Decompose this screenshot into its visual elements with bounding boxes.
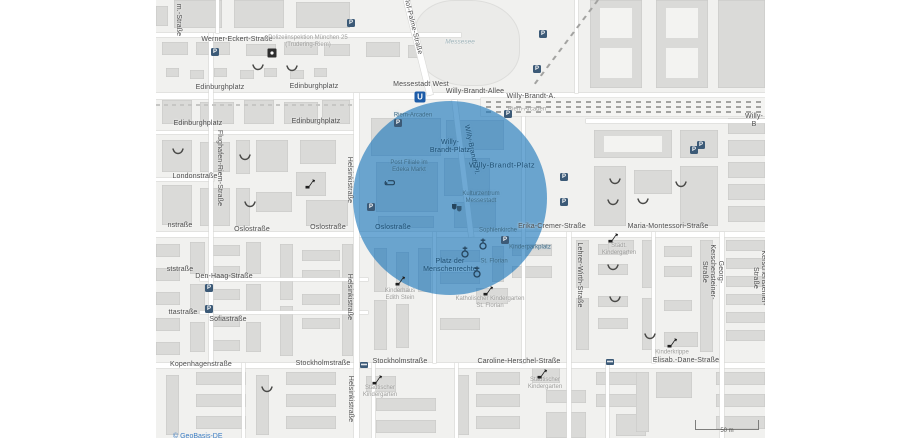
map-attribution: © GeoBasis-DE — [173, 433, 223, 438]
building — [700, 240, 713, 352]
ubahn-icon: U — [415, 92, 426, 103]
kindergarten-slide-icon — [537, 369, 548, 380]
building — [234, 0, 284, 28]
parking-icon: P — [560, 198, 568, 206]
building — [156, 268, 180, 281]
building — [302, 318, 340, 329]
parking-icon: P — [539, 30, 547, 38]
building — [166, 375, 179, 435]
playground-icon — [244, 201, 257, 210]
police-icon — [268, 49, 277, 58]
building — [726, 240, 765, 251]
building — [726, 258, 765, 269]
playground-icon — [172, 148, 185, 157]
building — [214, 68, 227, 77]
road — [575, 0, 578, 93]
road — [586, 119, 765, 123]
church-icon — [473, 266, 482, 278]
building-courtyard — [666, 8, 698, 38]
building — [166, 68, 179, 77]
building — [726, 330, 765, 341]
building — [156, 292, 180, 305]
building — [664, 246, 692, 257]
building — [156, 318, 180, 331]
building — [728, 162, 765, 178]
building — [476, 394, 520, 407]
building — [728, 140, 765, 156]
building — [726, 312, 765, 323]
building — [306, 200, 348, 226]
road — [455, 363, 458, 438]
building — [476, 372, 520, 385]
building — [174, 0, 222, 28]
building — [280, 244, 293, 300]
bus-stop-icon — [360, 362, 369, 369]
road — [156, 178, 214, 181]
road — [156, 363, 765, 368]
parking-icon: P — [211, 48, 219, 56]
screenshot-stage: 50 m © GeoBasis-DE Werner-Eckert-StraßeE… — [0, 0, 920, 438]
building — [576, 240, 589, 288]
building — [512, 266, 552, 278]
building — [286, 372, 336, 385]
building — [256, 375, 269, 435]
building — [196, 372, 246, 385]
parking-icon: P — [347, 19, 355, 27]
parking-icon: P — [504, 110, 512, 118]
playground-icon — [239, 154, 252, 163]
building — [302, 294, 340, 305]
building — [212, 245, 240, 256]
street-label: Helsinkistraße — [345, 157, 353, 203]
building — [284, 42, 318, 55]
railway-track — [486, 111, 762, 113]
building — [598, 318, 628, 329]
building — [212, 316, 240, 327]
building — [212, 289, 240, 300]
kindergarten-slide-icon — [483, 286, 494, 297]
playground-icon — [609, 296, 622, 305]
kindergarten-slide-icon — [372, 375, 383, 386]
building — [296, 2, 350, 28]
railway-track — [486, 106, 762, 108]
playground-icon — [675, 181, 688, 190]
building — [366, 42, 400, 57]
lake-messesee — [414, 0, 520, 86]
building — [726, 276, 765, 287]
kindergarten-slide-icon — [608, 233, 619, 244]
kindergarten-slide-icon — [667, 338, 678, 349]
building — [396, 304, 409, 348]
playground-icon — [607, 264, 620, 273]
theatre-icon — [452, 204, 463, 213]
building — [190, 242, 205, 274]
building — [196, 394, 246, 407]
building — [190, 284, 205, 314]
building — [634, 170, 672, 194]
building — [594, 166, 626, 226]
building — [212, 266, 240, 277]
playground-icon — [609, 178, 622, 187]
post-office-icon — [384, 179, 396, 188]
building — [156, 342, 180, 355]
parking-icon: P — [533, 65, 541, 73]
hedge-row — [156, 104, 356, 106]
building — [212, 340, 240, 351]
building-courtyard — [600, 8, 632, 38]
kindergarten-slide-icon — [305, 179, 316, 190]
building — [190, 322, 205, 352]
building — [190, 70, 204, 79]
street-label: Edinburghplatz — [290, 83, 339, 91]
building — [256, 140, 288, 172]
parking-icon: P — [367, 203, 375, 211]
road — [156, 131, 358, 134]
place-label: Kinderkrippe — [655, 350, 689, 357]
building-courtyard — [666, 48, 698, 78]
scale-bar: 50 m — [695, 420, 759, 430]
building — [656, 372, 692, 398]
building — [300, 140, 336, 164]
building — [162, 185, 192, 225]
building-courtyard — [604, 136, 662, 152]
road — [216, 0, 219, 33]
building — [264, 68, 277, 77]
parking-icon: P — [697, 141, 705, 149]
road — [200, 311, 368, 314]
playground-icon — [252, 64, 265, 73]
kindergarten-slide-icon — [395, 276, 406, 287]
building — [376, 398, 436, 411]
building — [286, 394, 336, 407]
map-canvas[interactable]: 50 m © GeoBasis-DE Werner-Eckert-StraßeE… — [156, 0, 765, 438]
road — [720, 232, 724, 438]
building — [324, 44, 350, 56]
road — [354, 93, 359, 438]
building — [728, 206, 765, 222]
building — [156, 6, 168, 26]
parking-icon: P — [205, 284, 213, 292]
building — [246, 284, 261, 314]
scale-bar-label: 50 m — [720, 428, 733, 434]
building — [726, 294, 765, 305]
road — [242, 363, 245, 438]
building — [256, 192, 292, 212]
building-courtyard — [600, 48, 632, 78]
road — [652, 232, 655, 363]
street-label: Helsinkistraße — [346, 376, 354, 422]
parking-icon: P — [394, 119, 402, 127]
road — [567, 232, 571, 438]
building — [314, 68, 327, 77]
building — [374, 300, 387, 350]
church-icon — [461, 246, 470, 258]
building — [546, 390, 586, 403]
building — [476, 416, 520, 429]
building — [196, 416, 246, 429]
building — [664, 266, 692, 277]
building — [376, 420, 436, 433]
playground-icon — [261, 386, 274, 395]
parking-icon: P — [501, 236, 509, 244]
building — [546, 412, 586, 438]
building — [728, 184, 765, 200]
playground-icon — [286, 65, 299, 74]
road — [606, 363, 609, 438]
building — [246, 242, 261, 274]
bus-stop-icon — [606, 359, 615, 366]
street-label: Edinburghplatz — [196, 84, 245, 92]
building — [680, 166, 718, 226]
road — [209, 33, 213, 363]
street-label: Messestadt West — [393, 81, 449, 89]
building — [636, 372, 649, 432]
playground-icon — [607, 199, 620, 208]
building — [342, 244, 353, 356]
building — [718, 0, 765, 88]
parking-icon: P — [560, 173, 568, 181]
building — [440, 318, 480, 330]
playground-icon — [644, 333, 657, 342]
parking-icon: P — [205, 305, 213, 313]
building — [286, 416, 336, 429]
building — [200, 188, 230, 226]
church-icon — [479, 238, 488, 250]
building — [156, 244, 180, 257]
building — [246, 322, 261, 352]
building — [162, 42, 188, 55]
road — [200, 278, 368, 281]
building — [664, 300, 692, 311]
building — [302, 250, 340, 261]
railway-track — [486, 101, 762, 103]
building — [576, 298, 589, 350]
building — [200, 142, 230, 172]
playground-icon — [637, 198, 650, 207]
highlight-circle — [353, 101, 547, 295]
